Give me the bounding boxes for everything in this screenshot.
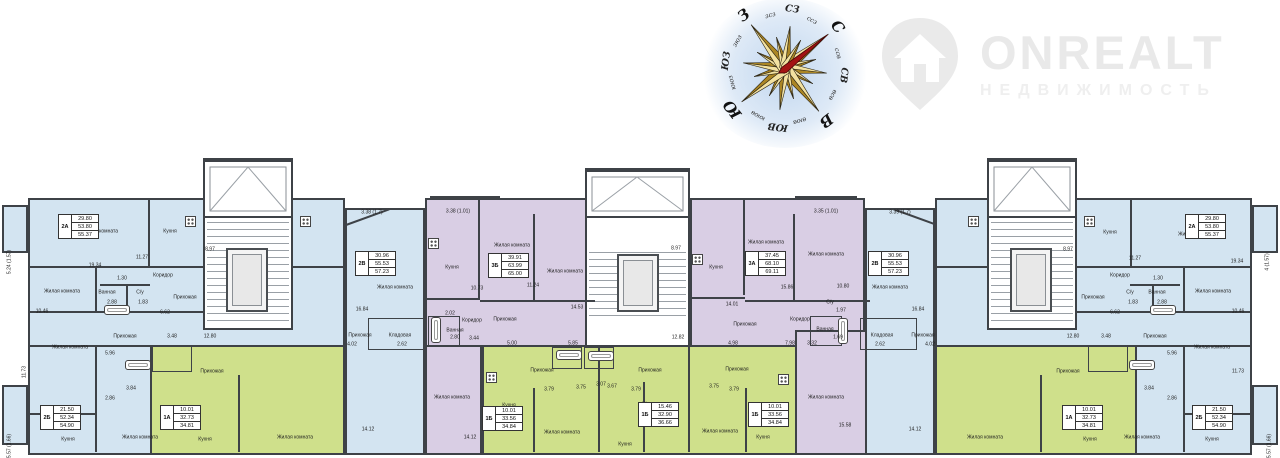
room-label: 3.84 [126,387,136,392]
room-label: Ванная [816,328,833,333]
room-label: Жилая комната [544,431,580,436]
room-label: 6.62 [1110,311,1120,316]
room-label: Жилая комната [277,436,313,441]
room-label: Жилая комната [748,241,784,246]
room-label: 5.96 [105,352,115,357]
wall [743,200,745,295]
stove-icon [428,238,439,249]
room-label: Прихожая [1056,370,1079,375]
apartment-area-value: 21.50 [54,406,80,414]
shaft-right [987,160,1077,218]
room-label: 3.44 [469,337,479,342]
room-label: 6.62 [160,311,170,316]
room-label: 3.48 [1101,335,1111,340]
room-label: 10.46 [1232,310,1245,315]
room-label: 14.53 [571,306,584,311]
balcony-top-left [2,205,28,253]
wall [1040,375,1042,452]
apartment-area-value: 57.23 [369,268,395,275]
wall [745,300,870,302]
apartment-id: 3Б [489,254,502,277]
room-label: 12.80 [1067,335,1080,340]
apartment-id: 2Б [1193,406,1206,429]
room-label: 1.30 [1153,277,1163,282]
bathtub-icon [588,351,614,361]
apartment-area-value: 55.53 [369,260,395,268]
room-label: Кухня [445,266,458,271]
room-label: Жилая комната [44,290,80,295]
room-label: 5.57 (1.66) [1268,434,1273,458]
room-label: 12.80 [204,335,217,340]
balcony-bottom-right [1252,385,1278,445]
room-label: 10.73 [471,287,484,292]
room-label: Прихожая [348,334,371,339]
apartment-area-value: 52.34 [1206,414,1232,422]
room-label: Кухня [1083,438,1096,443]
apartment-area-value: 32.73 [174,414,200,422]
room-label: 4.02 [925,343,935,348]
apartment-spec-table: 1А10.0132.7334.81 [1062,405,1103,430]
room-label: Прихожая [725,368,748,373]
apartment-area-value: 33.56 [496,415,522,423]
apartment-id: 3А [746,252,759,275]
apartment-area-value: 57.23 [882,268,908,275]
wall [1183,266,1185,312]
apartment-spec-table: 3Б39.9163.9965.00 [488,253,529,278]
room-label: Жилая комната [1195,290,1231,295]
room-label: 3.79 [544,388,554,393]
wall [148,200,150,266]
shaft-left [203,160,293,218]
wall [480,300,595,302]
wall [935,266,987,268]
room-label: 1.30 [117,277,127,282]
room-label: Жилая комната [52,346,88,351]
bathtub-icon [104,305,130,315]
room-label: 11.73 [23,366,28,378]
room-label: 3.35 (1.01) [814,210,838,215]
room-label: 5.96 [1167,352,1177,357]
wall [533,214,535,302]
apartment-id: 1А [161,406,174,429]
apartment-spec-table: 1Б15.4632.9036.66 [638,402,679,427]
room-label: 3.84 [1144,387,1154,392]
apartment-area-value: 63.99 [502,262,528,270]
wall [293,266,345,268]
elevator-center [617,254,659,312]
stove-icon [1084,216,1095,227]
wall [745,388,747,452]
room-label: Жилая комната [434,396,470,401]
room-label: 2.80 [450,336,460,341]
room-label: 19.34 [89,264,102,269]
room-label: 3.38 (1.01) [446,210,470,215]
stove-icon [692,254,703,265]
stove-icon [486,372,497,383]
apartment-id: 2В [356,252,369,275]
elevator-right [1010,248,1052,312]
apartment-id: 2А [1186,215,1199,238]
room-label: 3.79 [631,388,641,393]
apartment-id: 2А [59,215,72,238]
apartment-area-value: 55.37 [72,231,98,238]
wall [238,375,240,452]
room-label: 10.46 [36,310,49,315]
apartment-area-value: 29.80 [1199,215,1225,223]
room-label: С/у [136,291,144,296]
room-label: 3.32 [807,342,817,347]
apartment-area-value: 65.00 [502,270,528,277]
room-label: Кухня [1103,231,1116,236]
room-label: 11.24 [527,284,539,289]
room-label: Ванная [1148,291,1165,296]
wall [533,388,535,452]
room-label: 14.12 [464,436,477,441]
room-label: 2.86 [105,397,115,402]
room-label: Жилая комната [494,244,530,249]
apartment-area-value: 34.81 [1076,422,1102,429]
room-label: 16.84 [912,308,925,313]
apartment-area-value: 30.96 [369,252,395,260]
apartment-area-value: 37.45 [759,252,785,260]
room-label: Прихожая [911,334,934,339]
room-label: Коридор [153,274,173,279]
room-label: С/у [1126,291,1134,296]
room-label: 10.80 [837,285,850,290]
room-label: Коридор [1110,274,1130,279]
bathtub-icon [125,360,151,370]
apartment-area-value: 34.84 [496,423,522,430]
wall [1183,345,1185,452]
room-label: Кладовая [389,334,411,339]
room-label: Жилая комната [1124,436,1160,441]
room-label: 2.62 [397,343,407,348]
shaft-center [585,170,690,218]
apartment-area-value: 32.73 [1076,414,1102,422]
apartment-area-value: 33.56 [762,411,788,419]
room-label: 14.12 [362,428,375,433]
room-label: Жилая комната [547,270,583,275]
apartment-spec-table: 1Б10.0133.5634.84 [748,402,789,427]
room-label: 12.82 [672,336,685,341]
apartment-area-value: 29.80 [72,215,98,223]
room-label: Кухня [618,443,631,448]
apartment-spec-table: 1А10.0132.7334.81 [160,405,201,430]
apartment-area-value: 52.34 [54,414,80,422]
wall [425,298,480,300]
wall [688,345,690,452]
wall [28,266,203,268]
apartment-spec-table: 2А29.8053.8055.37 [1185,214,1226,239]
apartment-id: 1А [1063,406,1076,429]
apartment-spec-table: 2А29.8053.8055.37 [58,214,99,239]
wall [100,284,150,286]
room-label: 3.75 [709,385,719,390]
room-label: Жилая комната [808,396,844,401]
room-label: Ванная [446,329,463,334]
room-label: 2.86 [1167,397,1177,402]
apartment-area-value: 36.66 [652,419,678,426]
room-label: 14.12 [909,428,922,433]
apartment-spec-table: 2Б21.5052.3454.90 [1192,405,1233,430]
room-label: 16.84 [356,308,369,313]
apartment-area-value: 30.96 [882,252,908,260]
room-label: 3.79 [729,388,739,393]
room-label: Жилая комната [377,286,413,291]
room-label: Кухня [1205,438,1218,443]
balcony-top-right [1252,205,1278,253]
elevator-left [226,248,268,312]
bathtub-icon [431,317,441,343]
bathtub-icon [556,350,582,360]
apartment-area-value: 10.01 [1076,406,1102,414]
apartment-area-value: 15.46 [652,403,678,411]
room-label: 8.97 [205,248,215,253]
apartment-spec-table: 2В30.9655.5357.23 [355,251,396,276]
stove-icon [300,216,311,227]
apartment-area-value: 21.50 [1206,406,1232,414]
apartment-spec-table: 2Б21.5052.3454.90 [40,405,81,430]
room-label: 4.98 [728,342,738,347]
room-label: Ванная [98,291,115,296]
stove-icon [778,374,789,385]
room-label: 2.88 [1157,301,1167,306]
apartment-area-value: 55.53 [882,260,908,268]
room-label: Жилая комната [967,436,1003,441]
apartment-area-value: 68.10 [759,260,785,268]
room-label: 11.27 [1129,257,1141,262]
room-label: Жилая комната [872,286,908,291]
room-label: Кухня [198,438,211,443]
wall [1130,284,1180,286]
room-label: 14.01 [726,303,739,308]
apartment-area-value: 55.37 [1199,231,1225,238]
apartment-spec-table: 1Б10.0133.5634.84 [482,406,523,431]
room-label: 11.73 [1232,370,1244,375]
room-label: Жилая комната [122,436,158,441]
stove-icon [185,216,196,227]
room-label: Прихожая [200,370,223,375]
apartment-3a-lower-zone [795,330,870,455]
apartment-area-value: 53.80 [1199,223,1225,231]
apartment-id: 2Б [41,406,54,429]
apartment-id: 1Б [639,403,652,426]
room-label: Кухня [756,436,769,441]
room-label: Кухня [709,266,722,271]
apartment-id: 1Б [483,407,496,430]
room-label: 15.86 [781,286,794,291]
apartment-area-value: 10.01 [762,403,788,411]
bathtub-icon [1150,305,1176,315]
room-label: 5.57 (1.66) [8,434,13,458]
stove-icon [968,216,979,227]
room-label: 3.38 (1.7) [361,211,382,216]
room-label: 5.85 [568,342,578,347]
room-label: Кухня [61,438,74,443]
room-label: 3.67 [607,385,617,390]
room-label: 15.58 [839,424,852,429]
apartment-spec-table: 2В30.9655.5357.23 [868,251,909,276]
room-label: Прихожая [530,369,553,374]
room-label: 2.02 [445,312,455,317]
room-label: Коридор [790,318,810,323]
floor-plan: КухняЖилая комната19.3411.278.975.24 (1.… [0,0,1280,452]
apartment-area-value: 69.11 [759,268,785,275]
wall [1077,266,1252,268]
room-label: Жилая комната [808,253,844,258]
room-label: 8.97 [1063,248,1073,253]
room-label: Прихожая [113,335,136,340]
apartment-area-value: 10.01 [174,406,200,414]
room-label: 2.62 [875,343,885,348]
apartment-area-value: 10.01 [496,407,522,415]
room-label: Прихожая [638,369,661,374]
room-label: 2.88 [107,301,117,306]
room-label: 3.07 [596,383,606,388]
apartment-area-value: 39.91 [502,254,528,262]
apartment-spec-table: 3А37.4568.1069.11 [745,251,786,276]
apartment-area-value: 32.90 [652,411,678,419]
wall [95,345,97,452]
bathroom-walls [1088,346,1128,372]
apartment-area-value: 53.80 [72,223,98,231]
room-label: Коридор [462,319,482,324]
wall [690,297,745,299]
room-label: 1.83 [1128,301,1138,306]
room-label: 5.24 (1.57) [8,250,13,274]
room-label: 7.98 [785,342,795,347]
room-label: 19.34 [1231,260,1244,265]
floorplan-page: { "watermark": { "brand": "ONREALT", "su… [0,0,1280,452]
apartment-area-value: 54.90 [54,422,80,429]
room-label: Кухня [163,230,176,235]
room-label: 3.75 [576,386,586,391]
apartment-area-value: 34.84 [762,419,788,426]
room-label: 1.69 [833,336,843,341]
room-label: 1.97 [836,309,846,314]
room-label: Жилая комната [702,430,738,435]
room-label: Прихожая [493,318,516,323]
room-label: 4 (1.57) [1266,253,1271,270]
room-label: Прихожая [173,296,196,301]
apartment-area-value: 54.90 [1206,422,1232,429]
room-label: С/у [826,301,834,306]
apartments-1b-zone [482,345,800,455]
room-label: Кладовая [871,334,893,339]
room-label: Прихожая [1143,335,1166,340]
wall [95,266,97,312]
apartment-id: 2В [869,252,882,275]
room-label: Прихожая [1081,296,1104,301]
room-label: 11.27 [136,256,148,261]
room-label: 5.00 [507,342,517,347]
room-label: Жилая комната [1194,346,1230,351]
room-label: 4.02 [347,343,357,348]
room-label: 8.97 [671,247,681,252]
room-label: 3.39 (1.7) [889,211,910,216]
apartment-id: 1Б [749,403,762,426]
bathroom-walls [152,346,192,372]
room-label: 1.83 [138,301,148,306]
apartment-area-value: 34.81 [174,422,200,429]
room-label: Прихожая [733,323,756,328]
bathtub-icon [1129,360,1155,370]
room-label: 3.48 [167,335,177,340]
